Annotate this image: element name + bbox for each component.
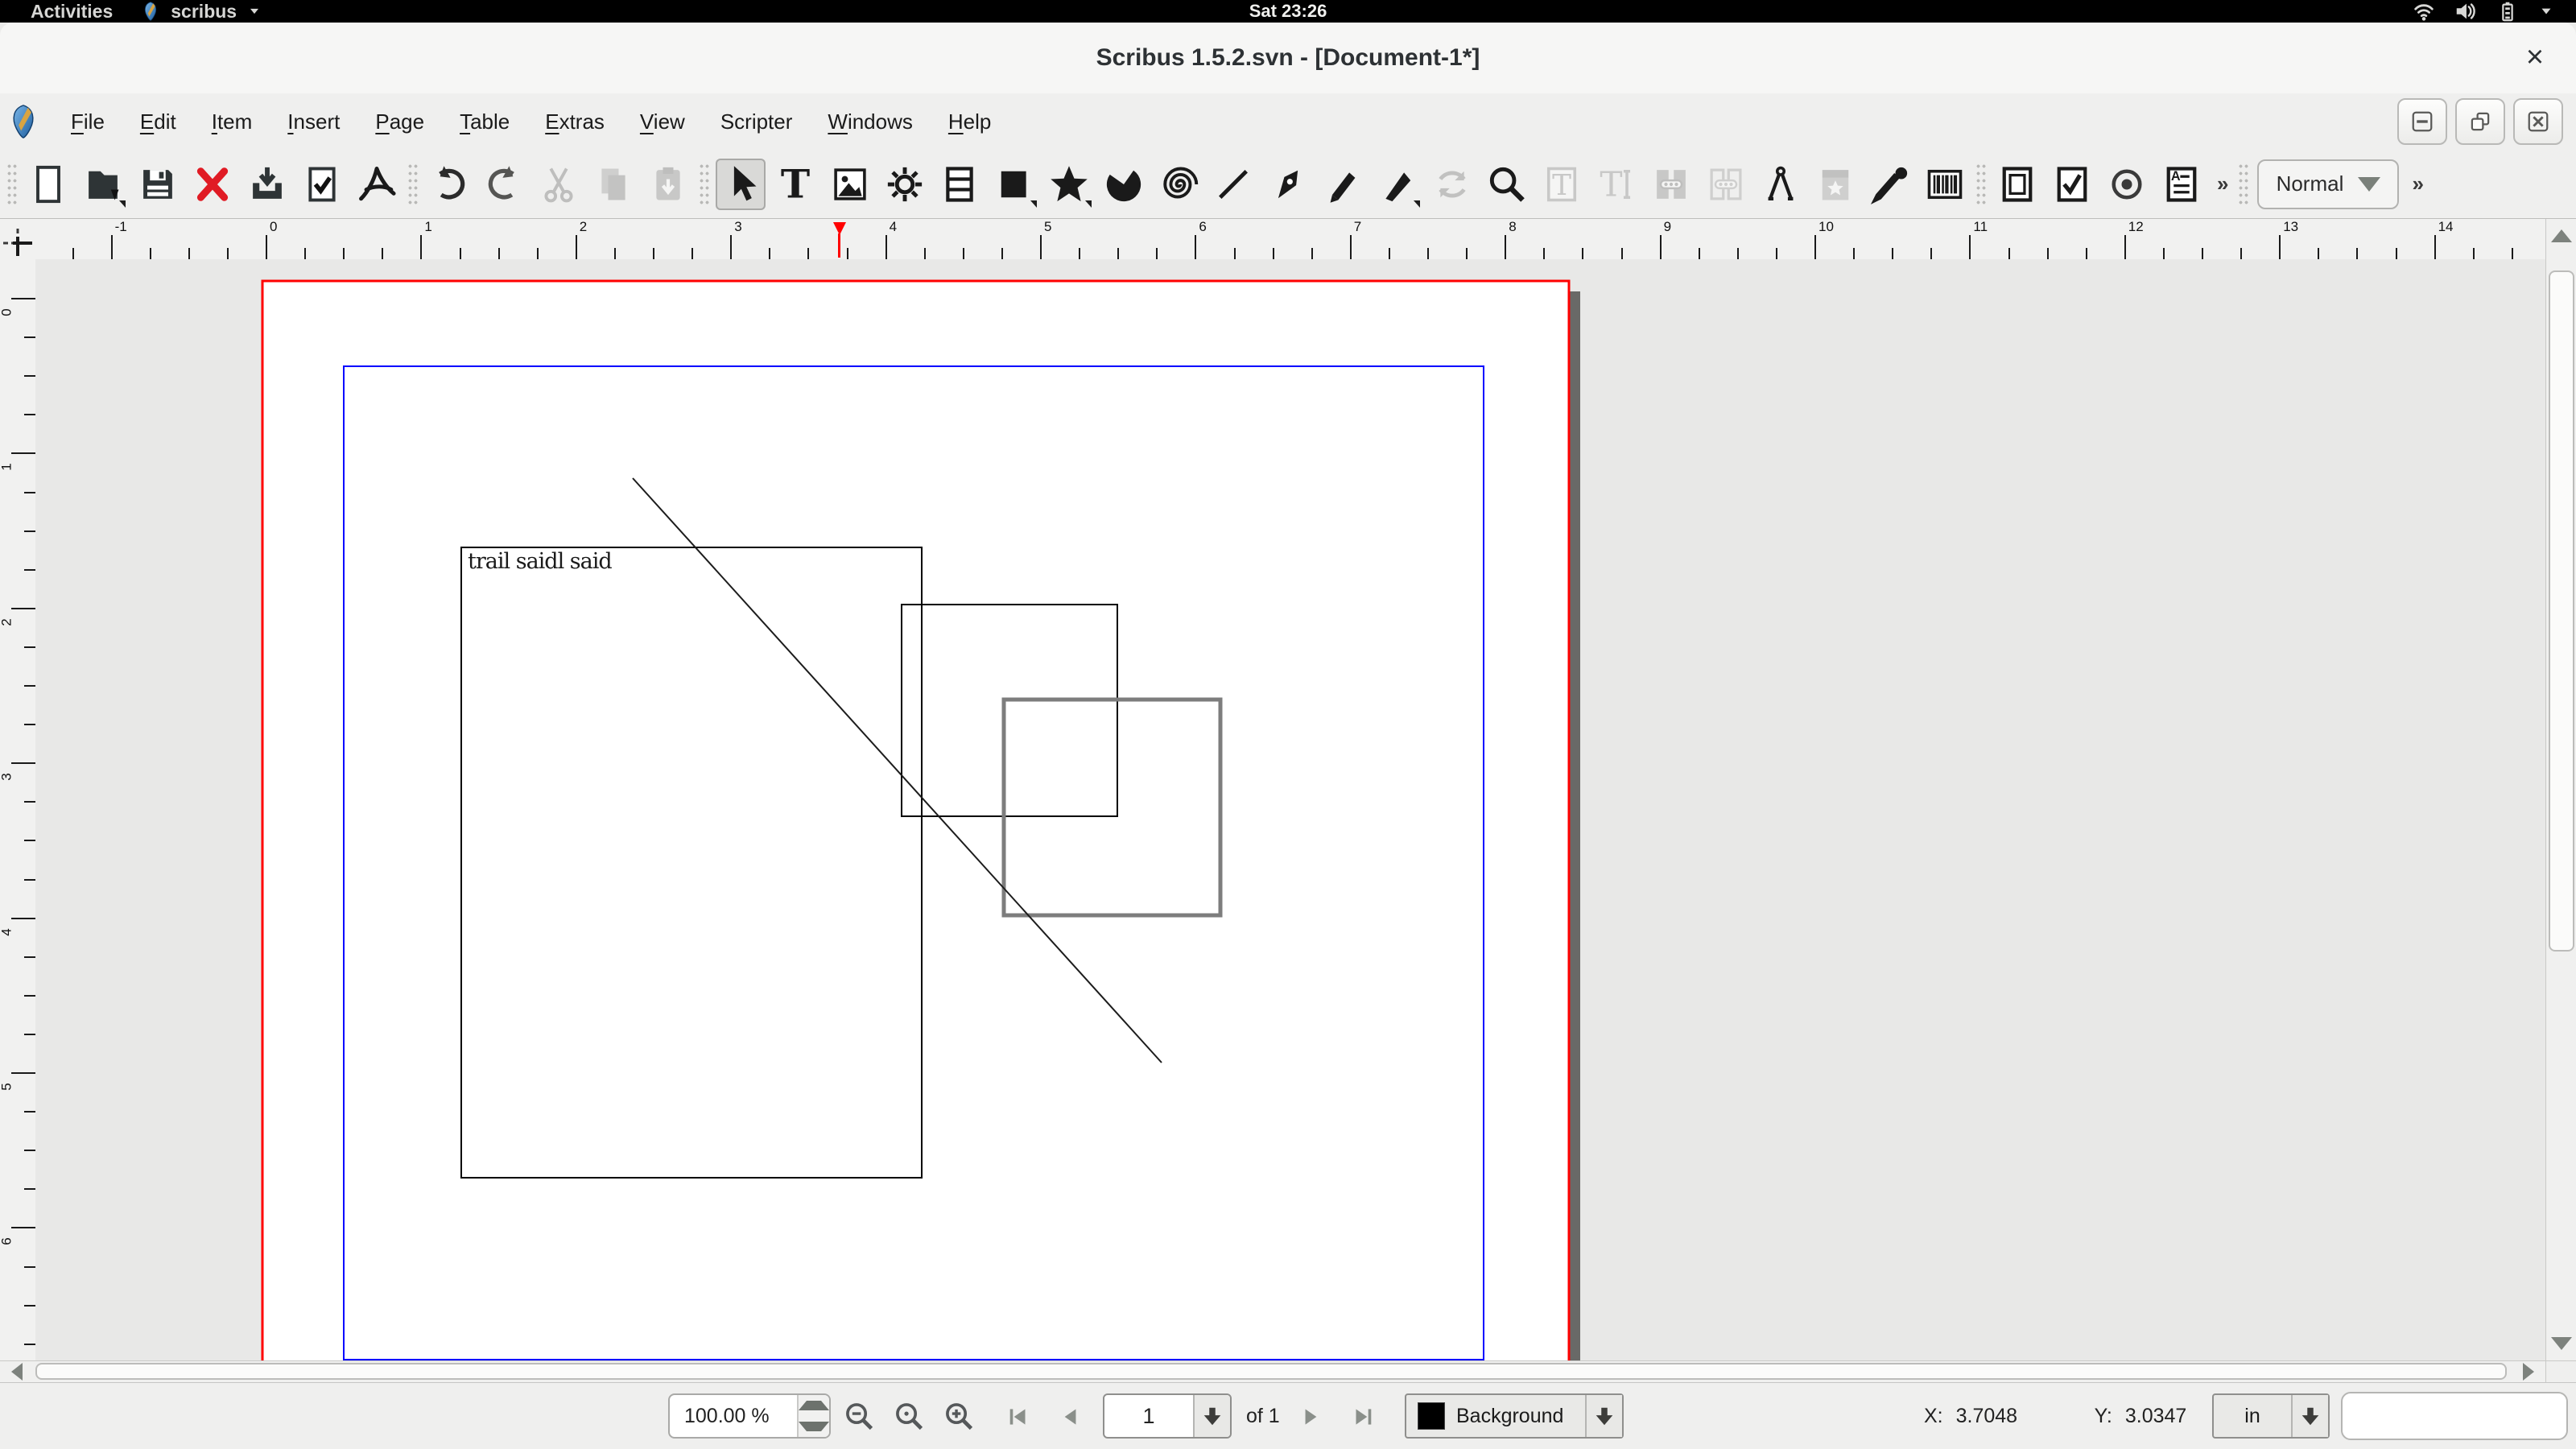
dropdown-triangle-icon xyxy=(119,200,126,208)
ruler-tick xyxy=(1814,235,1816,259)
toolbar-handle xyxy=(2238,161,2249,208)
ruler-tick xyxy=(2202,248,2203,259)
ruler-tick xyxy=(460,248,461,259)
save-document-button[interactable] xyxy=(133,159,183,210)
ruler-tick xyxy=(2008,248,2010,259)
window-title: Scribus 1.5.2.svn - [Document-1*] xyxy=(0,23,2576,93)
svg-text:T: T xyxy=(1552,169,1571,202)
ruler-tick xyxy=(2124,235,2126,259)
next-page-button[interactable] xyxy=(1293,1398,1330,1435)
select-item-button[interactable] xyxy=(716,159,766,210)
unit-combobox[interactable]: in xyxy=(2212,1393,2330,1439)
arrow-down-icon xyxy=(1592,1404,1616,1428)
insert-bezier-curve-button[interactable] xyxy=(1263,159,1313,210)
ruler-tick xyxy=(24,1344,35,1345)
ruler-tick xyxy=(1699,248,1700,259)
ruler-label: 2 xyxy=(580,219,587,235)
insert-bezier-curve-icon xyxy=(1267,163,1309,205)
svg-text:T: T xyxy=(781,163,810,205)
menu-edit[interactable]: Edit xyxy=(122,101,194,142)
insert-calligraphic-line-icon xyxy=(1377,163,1418,205)
ruler-label: 5 xyxy=(0,1083,15,1090)
ruler-tick xyxy=(1156,248,1158,259)
ruler-label: 5 xyxy=(1044,219,1051,235)
ruler-tick xyxy=(24,685,35,687)
triangle-up-icon xyxy=(799,1401,829,1410)
copy-button xyxy=(588,159,638,210)
save-document-icon xyxy=(137,163,179,205)
ruler-tick xyxy=(576,235,577,259)
layer-name: Background xyxy=(1445,1405,1585,1428)
ruler-tick xyxy=(2047,248,2049,259)
insert-shape-icon xyxy=(993,163,1035,205)
ruler-tick xyxy=(730,235,732,259)
pdf-radio-button-icon xyxy=(2106,163,2148,205)
cursor-coordinates: X: 3.7048 Y: 3.0347 xyxy=(1924,1383,2206,1449)
previous-page-icon xyxy=(1056,1403,1084,1430)
y-coordinate-value: 3.0347 xyxy=(2125,1405,2206,1428)
chevron-down-icon xyxy=(246,3,262,19)
zoom-level-spinbox[interactable]: 100.00 % xyxy=(668,1393,831,1439)
ruler-tick xyxy=(11,762,35,764)
ruler-tick xyxy=(24,1188,35,1190)
first-page-icon xyxy=(1005,1403,1032,1430)
scroll-right-button[interactable] xyxy=(2513,1361,2544,1382)
ruler-label: 4 xyxy=(0,928,15,935)
ruler-tick xyxy=(24,1111,35,1113)
ruler-label: 3 xyxy=(734,219,741,235)
ruler-label: 4 xyxy=(890,219,897,235)
pdf-push-button-icon xyxy=(1996,163,2038,205)
ruler-tick xyxy=(24,1150,35,1151)
ruler-tick xyxy=(1079,248,1080,259)
ruler-tick xyxy=(11,1072,35,1074)
first-page-button[interactable] xyxy=(1000,1398,1037,1435)
chevron-down-icon xyxy=(2537,2,2555,20)
undo-icon xyxy=(428,163,470,205)
eye-dropper-icon xyxy=(1869,163,1911,205)
clock[interactable]: Sat 23:26 xyxy=(1249,1,1327,22)
layer-color-swatch xyxy=(1418,1402,1445,1430)
next-page-icon xyxy=(1298,1403,1325,1430)
chevron-down-icon xyxy=(2358,177,2380,192)
last-page-icon xyxy=(1349,1403,1377,1430)
triangle-down-icon xyxy=(799,1422,829,1431)
ruler-tick xyxy=(1543,248,1545,259)
print-document-button[interactable] xyxy=(242,159,292,210)
rotate-item-icon xyxy=(1431,163,1473,205)
ruler-tick xyxy=(847,248,848,259)
open-document-icon xyxy=(82,163,124,205)
system-status-area[interactable] xyxy=(2412,0,2576,23)
menu-insert[interactable]: Insert xyxy=(270,101,357,142)
ruler-tick xyxy=(24,646,35,648)
page xyxy=(262,281,1569,1360)
ruler-tick xyxy=(2434,235,2436,259)
restore-icon xyxy=(2466,107,2495,136)
ruler-tick xyxy=(2163,248,2165,259)
app-menu-label: scribus xyxy=(171,1,237,23)
menu-bar: FileEditItemInsertPageTableExtrasViewScr… xyxy=(0,93,2576,151)
ruler-label: 9 xyxy=(1664,219,1671,235)
mdi-minimize-button[interactable] xyxy=(2397,98,2447,145)
menu-table[interactable]: Table xyxy=(442,101,527,142)
insert-image-frame-button[interactable] xyxy=(825,159,875,210)
document-canvas[interactable]: trail saidl said xyxy=(35,259,2545,1360)
link-text-frames-icon xyxy=(1650,163,1692,205)
y-label: Y: xyxy=(2095,1405,2112,1428)
insert-freehand-line-button[interactable] xyxy=(1318,159,1368,210)
pdf-push-button-button[interactable] xyxy=(1992,159,2042,210)
ruler-label: 14 xyxy=(2438,219,2454,235)
ruler-label: 6 xyxy=(1199,219,1206,235)
main-toolbar: TTTA » Normal » xyxy=(0,150,2576,219)
ruler-tick xyxy=(24,995,35,997)
pdf-text-field-icon: A xyxy=(2161,163,2202,205)
zoom-100-button[interactable] xyxy=(889,1396,931,1438)
ruler-tick xyxy=(111,235,113,259)
svg-text:A: A xyxy=(2171,169,2181,184)
insert-render-frame-icon xyxy=(884,163,926,205)
paste-button xyxy=(643,159,693,210)
edit-text-story-editor-button: T xyxy=(1591,159,1641,210)
menu-help[interactable]: Help xyxy=(931,101,1009,142)
ruler-label: 1 xyxy=(424,219,431,235)
cut-button xyxy=(534,159,584,210)
menu-scripter[interactable]: Scripter xyxy=(703,101,811,142)
ruler-tick xyxy=(24,1034,35,1035)
ruler-tick xyxy=(11,1227,35,1228)
insert-arc-icon xyxy=(1103,163,1145,205)
menu-item[interactable]: Item xyxy=(194,101,270,142)
insert-arc-button[interactable] xyxy=(1099,159,1149,210)
volume-icon xyxy=(2454,0,2478,23)
ruler-tick xyxy=(24,569,35,571)
ruler-tick xyxy=(498,248,500,259)
svg-text:T: T xyxy=(1600,164,1622,204)
ruler-tick xyxy=(24,956,35,958)
layer-dropdown-button[interactable] xyxy=(1585,1395,1622,1437)
ruler-tick xyxy=(227,248,229,259)
dropdown-triangle-icon xyxy=(1030,200,1037,208)
battery-icon xyxy=(2495,0,2520,23)
zoom-out-button[interactable] xyxy=(839,1396,881,1438)
scroll-left-button[interactable] xyxy=(2,1361,32,1382)
scribus-application: Activities scribus Sat 23:26 Scribus 1.5… xyxy=(0,0,2576,1449)
ruler-tick xyxy=(614,248,616,259)
page-number-spinbox[interactable]: 1 xyxy=(1103,1393,1232,1439)
x-coordinate-value: 3.7048 xyxy=(1956,1405,2037,1428)
scribus-logo-icon xyxy=(5,101,42,142)
scrollbar-corner xyxy=(2545,1360,2576,1383)
arrow-down-icon xyxy=(1200,1404,1224,1428)
ruler-tick xyxy=(1273,248,1274,259)
preview-mode-combobox[interactable]: Normal xyxy=(2257,159,2399,209)
insert-text-frame-icon: T xyxy=(774,163,816,205)
insert-shape-button[interactable] xyxy=(989,159,1039,210)
ruler-tick xyxy=(343,248,345,259)
pdf-radio-button-button[interactable] xyxy=(2102,159,2152,210)
measurements-button[interactable] xyxy=(1756,159,1806,210)
ruler-tick xyxy=(2512,248,2513,259)
gnome-top-bar: Activities scribus Sat 23:26 xyxy=(0,0,2576,23)
triangle-down-icon xyxy=(2551,1337,2572,1350)
ruler-tick xyxy=(1350,235,1352,259)
ruler-tick xyxy=(188,248,190,259)
ruler-tick xyxy=(24,530,35,532)
toolbar-handle xyxy=(407,161,419,208)
insert-line-button[interactable] xyxy=(1208,159,1258,210)
close-document-icon xyxy=(192,163,233,205)
toolbar-handle xyxy=(1975,161,1987,208)
ruler-tick xyxy=(691,248,693,259)
ruler-tick xyxy=(24,414,35,415)
previous-page-button[interactable] xyxy=(1051,1398,1088,1435)
scribus-logo-icon xyxy=(140,1,161,22)
menu-page[interactable]: Page xyxy=(357,101,442,142)
vertical-ruler[interactable]: 0123456 xyxy=(0,259,36,1360)
ruler-tick xyxy=(72,248,74,259)
ruler-tick xyxy=(24,801,35,803)
zoom-button[interactable] xyxy=(1482,159,1532,210)
ruler-tick xyxy=(1892,248,1893,259)
ruler-label: 1 xyxy=(0,464,15,471)
toolbar-handle xyxy=(6,161,18,208)
redo-button[interactable] xyxy=(479,159,529,210)
ruler-tick xyxy=(1117,248,1119,259)
insert-barcode-icon xyxy=(1924,163,1966,205)
app-menu[interactable]: scribus xyxy=(140,1,262,23)
mdi-window-controls xyxy=(2397,98,2576,145)
ruler-tick xyxy=(1040,235,1042,259)
ruler-tick xyxy=(11,918,35,919)
zoom-out-icon xyxy=(843,1400,877,1434)
ruler-tick xyxy=(11,452,35,454)
ruler-tick xyxy=(304,248,306,259)
zoom-in-icon xyxy=(943,1400,976,1434)
activities-button[interactable]: Activities xyxy=(31,1,113,23)
ruler-label: 7 xyxy=(1354,219,1361,235)
ruler-tick xyxy=(24,336,35,338)
ruler-tick xyxy=(1621,248,1623,259)
ruler-tick xyxy=(1427,248,1429,259)
text-frame-content[interactable]: trail saidl said xyxy=(468,551,612,572)
ruler-tick xyxy=(11,298,35,299)
ruler-tick xyxy=(150,248,151,259)
ruler-tick xyxy=(1660,235,1662,259)
unlink-text-frames-button xyxy=(1701,159,1751,210)
new-document-icon xyxy=(27,163,69,205)
triangle-right-icon xyxy=(2523,1363,2534,1381)
ruler-tick xyxy=(1969,235,1971,259)
menu-view[interactable]: View xyxy=(622,101,703,142)
ruler-tick xyxy=(1311,248,1313,259)
unlink-text-frames-icon xyxy=(1705,163,1747,205)
ruler-tick xyxy=(24,1305,35,1307)
ruler-tick xyxy=(537,248,539,259)
ruler-tick xyxy=(807,248,809,259)
dropdown-triangle-icon xyxy=(1414,200,1420,208)
insert-table-icon xyxy=(939,163,980,205)
layer-combobox[interactable]: Background xyxy=(1405,1393,1624,1439)
ruler-label: 6 xyxy=(0,1238,15,1245)
toolbar-overflow-button[interactable]: » xyxy=(2217,171,2227,196)
eye-dropper-button[interactable] xyxy=(1865,159,1915,210)
wifi-icon xyxy=(2412,0,2436,23)
scroll-down-button[interactable] xyxy=(2546,1328,2576,1359)
ruler-tick xyxy=(1737,248,1739,259)
page-number-value: 1 xyxy=(1104,1404,1193,1429)
mdi-close-button[interactable] xyxy=(2513,98,2563,145)
minimize-icon xyxy=(2408,107,2437,136)
zoom-spin-down-button[interactable] xyxy=(799,1416,829,1437)
menu-file[interactable]: File xyxy=(53,101,122,142)
ruler-tick xyxy=(382,248,383,259)
ruler-tick xyxy=(1776,248,1777,259)
pdf-check-box-button[interactable] xyxy=(2047,159,2097,210)
insert-barcode-button[interactable] xyxy=(1920,159,1970,210)
preflight-verifier-icon xyxy=(301,163,343,205)
ruler-tick xyxy=(420,235,422,259)
toolbar-overflow-button[interactable]: » xyxy=(2412,171,2421,196)
ruler-tick xyxy=(1930,248,1932,259)
insert-line-icon xyxy=(1212,163,1254,205)
zoom-100-icon xyxy=(893,1400,927,1434)
zoom-in-button[interactable] xyxy=(939,1396,980,1438)
x-label: X: xyxy=(1924,1405,1943,1428)
ruler-tick xyxy=(24,492,35,493)
undo-button[interactable] xyxy=(424,159,474,210)
save-as-pdf-icon xyxy=(356,163,398,205)
ruler-tick xyxy=(963,248,964,259)
page-number-dropdown-button[interactable] xyxy=(1193,1395,1230,1437)
open-document-button[interactable] xyxy=(78,159,128,210)
copy-item-properties-icon xyxy=(1814,163,1856,205)
insert-image-frame-icon xyxy=(829,163,871,205)
ruler-tick xyxy=(2318,248,2319,259)
horizontal-ruler[interactable]: -101234567891011121314 xyxy=(35,219,2545,260)
ruler-tick xyxy=(24,724,35,725)
zoom-spin-up-button[interactable] xyxy=(799,1395,829,1416)
ruler-tick xyxy=(885,235,887,259)
ruler-tick xyxy=(2396,248,2397,259)
last-page-button[interactable] xyxy=(1344,1398,1381,1435)
insert-spiral-button[interactable] xyxy=(1154,159,1203,210)
page-shadow xyxy=(1569,291,1580,1360)
ruler-tick xyxy=(1505,235,1506,259)
ruler-label: 12 xyxy=(2128,219,2144,235)
window-close-button[interactable]: × xyxy=(2512,34,2558,80)
ruler-tick xyxy=(1853,248,1855,259)
vertical-scroll-thumb[interactable] xyxy=(2549,270,2574,952)
dropdown-triangle-icon xyxy=(1085,200,1092,208)
ruler-tick xyxy=(1234,248,1236,259)
ruler-tick xyxy=(24,879,35,881)
ruler-tick xyxy=(1466,248,1468,259)
ruler-tick xyxy=(266,235,267,259)
cut-icon xyxy=(538,163,580,205)
ruler-tick xyxy=(1389,248,1390,259)
ruler-tick xyxy=(1001,248,1003,259)
vertical-scrollbar[interactable] xyxy=(2545,219,2576,1360)
window-title-bar[interactable]: Scribus 1.5.2.svn - [Document-1*] × xyxy=(0,23,2576,94)
copy-icon xyxy=(592,163,634,205)
menu-windows[interactable]: Windows xyxy=(810,101,930,142)
ruler-label: -1 xyxy=(115,219,127,235)
ruler-label: 3 xyxy=(0,773,15,780)
toolbar-handle xyxy=(699,161,710,208)
insert-polygon-button[interactable] xyxy=(1044,159,1094,210)
new-document-button[interactable] xyxy=(23,159,73,210)
insert-text-frame-button[interactable]: T xyxy=(770,159,820,210)
triangle-up-icon xyxy=(2551,229,2572,242)
preview-mode-value: Normal xyxy=(2277,171,2344,196)
ruler-label: 0 xyxy=(270,219,277,235)
horizontal-scrollbar[interactable] xyxy=(0,1360,2545,1383)
insert-spiral-icon xyxy=(1158,163,1199,205)
ruler-tick xyxy=(2240,248,2242,259)
ruler-label: 8 xyxy=(1509,219,1516,235)
insert-calligraphic-line-button[interactable] xyxy=(1373,159,1422,210)
insert-freehand-line-icon xyxy=(1322,163,1364,205)
insert-render-frame-button[interactable] xyxy=(880,159,930,210)
page-canvas-svg[interactable] xyxy=(35,259,2545,1360)
print-document-icon xyxy=(246,163,288,205)
ruler-label: 0 xyxy=(0,308,15,316)
ruler-label: 2 xyxy=(0,618,15,625)
ruler-label: 13 xyxy=(2283,219,2298,235)
cursor-position-marker xyxy=(833,222,846,258)
ruler-tick xyxy=(1195,235,1196,259)
close-icon xyxy=(2524,107,2553,136)
ruler-tick xyxy=(924,248,926,259)
link-text-frames-button xyxy=(1646,159,1696,210)
save-as-pdf-button[interactable] xyxy=(352,159,402,210)
ruler-tick xyxy=(24,840,35,841)
insert-table-button[interactable] xyxy=(935,159,985,210)
measurements-icon xyxy=(1760,163,1802,205)
unit-dropdown-button[interactable] xyxy=(2291,1395,2328,1437)
menu-extras[interactable]: Extras xyxy=(527,101,622,142)
ruler-tick xyxy=(1582,248,1583,259)
zoom-icon xyxy=(1486,163,1528,205)
close-document-button[interactable] xyxy=(188,159,237,210)
mdi-restore-button[interactable] xyxy=(2455,98,2505,145)
ruler-tick xyxy=(2086,248,2087,259)
insert-polygon-icon xyxy=(1048,163,1090,205)
arrow-down-icon xyxy=(2298,1404,2322,1428)
ruler-tick xyxy=(2473,248,2475,259)
ruler-label: 11 xyxy=(1973,219,1988,235)
ruler-tick xyxy=(24,1266,35,1268)
ruler-label: 10 xyxy=(1818,219,1834,235)
copy-item-properties-button xyxy=(1810,159,1860,210)
unit-value: in xyxy=(2214,1405,2291,1428)
ruler-origin-corner[interactable] xyxy=(0,219,35,260)
scroll-up-button[interactable] xyxy=(2546,221,2576,251)
edit-contents-button: T xyxy=(1537,159,1587,210)
select-item-icon xyxy=(720,163,762,205)
edit-text-story-editor-icon: T xyxy=(1596,163,1637,205)
status-message-field[interactable] xyxy=(2341,1392,2568,1440)
triangle-left-icon xyxy=(11,1363,23,1381)
ruler-tick xyxy=(24,375,35,377)
pdf-text-field-button[interactable]: A xyxy=(2157,159,2207,210)
preflight-verifier-button[interactable] xyxy=(297,159,347,210)
horizontal-scroll-thumb[interactable] xyxy=(35,1363,2507,1380)
ruler-tick xyxy=(11,608,35,609)
ruler-tick xyxy=(2279,235,2281,259)
